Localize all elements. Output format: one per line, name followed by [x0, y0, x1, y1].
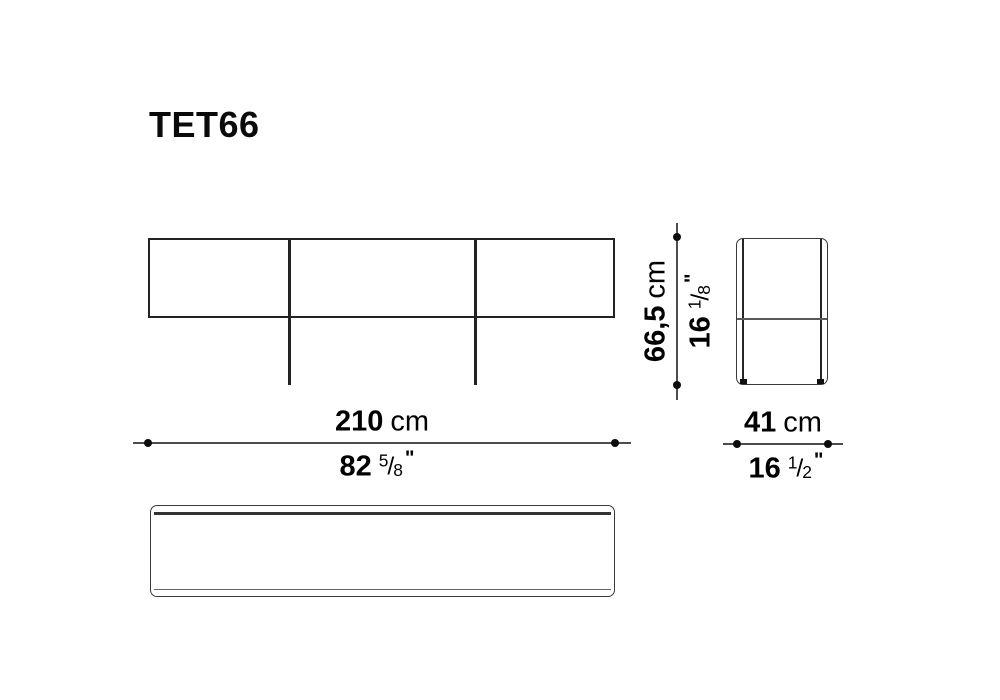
top-view-outline	[150, 505, 615, 597]
depth-imperial-inch-mark: "	[814, 449, 824, 471]
depth-imperial-fraction: 1/2	[788, 453, 812, 485]
width-metric-value: 210	[335, 406, 383, 438]
width-imperial-label: 825/8"	[339, 448, 414, 481]
depth-dim-endpoint-left-dot	[733, 440, 741, 448]
side-view-outline	[736, 238, 828, 385]
side-view-right-foot	[817, 379, 824, 384]
product-code-title: TET66	[149, 104, 260, 146]
height-metric-value: 66,5	[640, 306, 672, 362]
height-dim-endpoint-top-dot	[673, 233, 681, 241]
side-view-front-leg	[742, 239, 744, 384]
side-view-shelf-line	[737, 318, 827, 320]
top-view-front-edge-line	[154, 589, 611, 590]
width-dim-endpoint-left-dot	[144, 439, 152, 447]
depth-imperial-label: 161/2"	[748, 450, 823, 483]
width-imperial-whole: 82	[339, 451, 371, 483]
height-metric-label: 66,5cm	[642, 260, 671, 362]
width-dim-endpoint-right-dot	[611, 439, 619, 447]
depth-dim-endpoint-right-dot	[824, 440, 832, 448]
depth-imperial-whole: 16	[748, 453, 780, 485]
width-imperial-inch-mark: "	[405, 447, 415, 469]
height-imperial-numerator: 1	[685, 300, 705, 310]
width-dimension-line	[133, 442, 631, 444]
depth-metric-value: 41	[744, 407, 776, 439]
height-dimension-line	[676, 223, 678, 400]
width-metric-unit: cm	[390, 406, 429, 438]
height-imperial-fraction: 1/8	[685, 285, 717, 309]
front-view-right-leg	[474, 238, 477, 385]
front-view-left-leg	[288, 238, 291, 385]
height-dim-endpoint-bottom-dot	[673, 381, 681, 389]
side-view-back-leg	[820, 239, 822, 384]
front-view-outline	[148, 238, 615, 318]
depth-metric-unit: cm	[783, 407, 822, 439]
depth-metric-label: 41cm	[744, 409, 822, 438]
technical-drawing-canvas: TET66 66,5cm 161/8" 210cm 825/8" 41cm 16…	[0, 0, 1000, 700]
height-metric-unit: cm	[640, 260, 672, 299]
top-view-back-edge-line	[154, 512, 611, 515]
height-imperial-inch-mark: "	[681, 273, 703, 283]
height-imperial-denominator: 8	[694, 285, 714, 295]
width-imperial-denominator: 8	[393, 460, 403, 480]
depth-imperial-denominator: 2	[802, 462, 812, 482]
side-view-left-foot	[740, 379, 747, 384]
height-imperial-whole: 16	[685, 316, 717, 348]
width-metric-label: 210cm	[335, 408, 429, 437]
height-imperial-label: 161/8"	[682, 273, 715, 348]
width-imperial-fraction: 5/8	[379, 451, 403, 483]
fraction-slash: /	[687, 294, 714, 301]
